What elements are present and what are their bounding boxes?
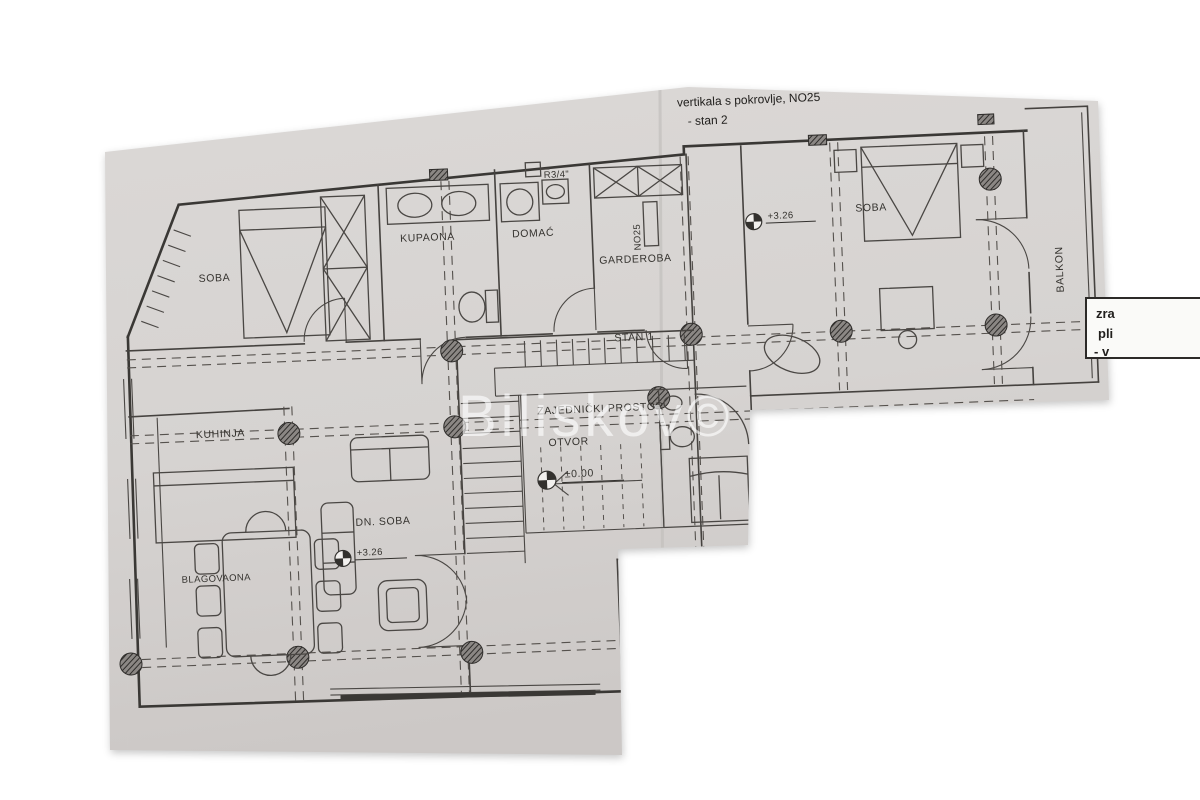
label-r34: R3/4" (544, 169, 570, 181)
room-label-soba-left: SOBA (198, 272, 230, 285)
legend-box: zra pli - v (1086, 298, 1200, 359)
room-label-domac: DOMAĆ (512, 226, 555, 241)
legend-line-1: zra (1096, 306, 1116, 321)
unit-label-stan1: STAN 1 (614, 331, 654, 345)
room-label-kuhinja: KUHINJA (196, 427, 246, 441)
label-no25-vertical: NO25 (632, 224, 644, 251)
note-stan2: - stan 2 (687, 113, 728, 129)
scanned-floor-plan: +3.26 +3.26 ±0.00 SOBA KUPAONA DOMAĆ GAR… (0, 0, 1200, 800)
floor-plan-canvas: +3.26 +3.26 ±0.00 SOBA KUPAONA DOMAĆ GAR… (0, 0, 1200, 800)
legend-line-2: pli (1098, 326, 1113, 341)
legend-line-3: - v (1094, 344, 1110, 359)
room-label-kupaona: KUPAONA (400, 231, 455, 245)
elevation-value: +3.26 (767, 210, 793, 222)
elevation-value: +3.26 (357, 547, 383, 559)
room-label-soba-right: SOBA (855, 201, 887, 214)
elevation-value: ±0.00 (565, 467, 595, 480)
watermark-text: Biliskov© (458, 384, 733, 449)
room-label-balkon: BALKON (1053, 246, 1067, 293)
room-label-dn-soba: DN. SOBA (355, 515, 410, 529)
